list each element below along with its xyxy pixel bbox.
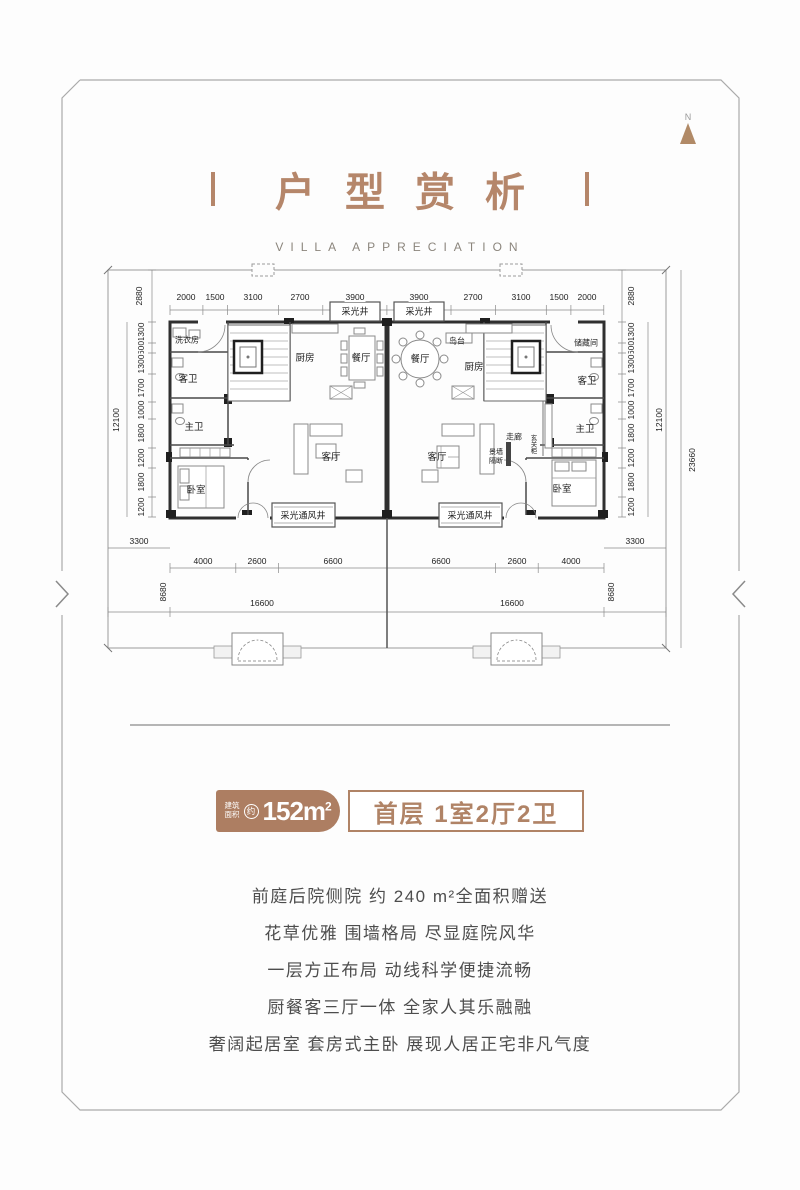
dimension-label: 1300 (136, 354, 146, 375)
room-label: 玄关柜 (527, 434, 537, 454)
dimension-label: 1500 (205, 292, 226, 302)
section-divider (130, 724, 670, 726)
dimension-label: 1700 (626, 378, 636, 399)
dimension-label: 4000 (193, 556, 214, 566)
room-label: 采光井 (341, 305, 368, 318)
room-label: 洗衣房 (175, 335, 199, 346)
dimension-label: 1000 (136, 400, 146, 421)
feature-line: 厨餐客三厅一体 全家人其乐融融 (0, 989, 800, 1026)
area-badge: 建筑 面积 约 152m2 (216, 790, 340, 832)
approx-circle: 约 (244, 804, 259, 819)
room-label: 储藏间 (574, 338, 598, 349)
dimension-label: 23660 (687, 447, 697, 473)
dimension-label: 1800 (136, 423, 146, 444)
unit-badge: 建筑 面积 约 152m2 首层 1室2厅2卫 (0, 790, 800, 832)
dimension-label: 1300 (626, 354, 636, 375)
dimension-label: 3300 (625, 536, 646, 546)
dimension-label: 3100 (243, 292, 264, 302)
dimension-label: 1800 (136, 472, 146, 493)
room-label: 客卫 (178, 371, 197, 385)
feature-line: 一层方正布局 动线科学便捷流畅 (0, 952, 800, 989)
dimension-label: 4000 (561, 556, 582, 566)
room-label: 卧室 (552, 481, 571, 495)
dimension-label: 16600 (249, 598, 275, 608)
dimension-label: 3900 (409, 292, 430, 302)
dimension-label: 2880 (626, 286, 636, 307)
room-label: 客厅 (321, 449, 340, 463)
dimension-label: 1200 (136, 497, 146, 518)
dimension-label: 16600 (499, 598, 525, 608)
room-label: 厨房 (295, 350, 314, 364)
room-label: 卧室 (186, 482, 205, 496)
area-value: 152m2 (263, 796, 331, 827)
room-label: 主卫 (575, 421, 594, 435)
room-label: 采光井 (405, 305, 432, 318)
room-label: 隔断 (489, 456, 503, 466)
dimension-label: 2000 (176, 292, 197, 302)
dimension-label: 6600 (323, 556, 344, 566)
room-label: 客卫 (577, 373, 596, 387)
dimension-lines (108, 270, 681, 648)
room-label: 厨房 (464, 359, 483, 373)
room-label: 主卫 (184, 419, 203, 433)
dimension-label: 1700 (136, 378, 146, 399)
feature-line: 花草优雅 围墙格局 尽显庭院风华 (0, 915, 800, 952)
room-label: 餐厅 (351, 350, 370, 364)
unit-info-badge: 首层 1室2厅2卫 (348, 790, 585, 832)
room-label: 岛台 (449, 336, 465, 347)
dimension-label: 2000 (577, 292, 598, 302)
dimension-label: 2600 (247, 556, 268, 566)
dimension-label: 1500 (549, 292, 570, 302)
dimension-label: 12100 (111, 407, 121, 433)
room-label: 采光通风井 (280, 509, 325, 522)
dimension-label: 3900 (345, 292, 366, 302)
dimension-label: 6600 (431, 556, 452, 566)
dimension-label: 1200 (626, 448, 636, 469)
area-prefix: 建筑 面积 (225, 802, 240, 819)
dimension-label: 1200 (136, 448, 146, 469)
dimension-label: 2700 (463, 292, 484, 302)
dimension-label: 2600 (507, 556, 528, 566)
feature-line: 前庭后院侧院 约 240 m²全面积赠送 (0, 878, 800, 915)
room-label: 客厅 (427, 449, 446, 463)
room-label: 采光通风井 (447, 509, 492, 522)
dimension-label: 12100 (654, 407, 664, 433)
dimension-label: 3300 (129, 536, 150, 546)
dimension-label: 1800 (626, 423, 636, 444)
dimension-label: 1800 (626, 472, 636, 493)
dimension-label: 1000 (626, 400, 636, 421)
room-label: 餐厅 (410, 351, 429, 365)
feature-list: 前庭后院侧院 约 240 m²全面积赠送 花草优雅 围墙格局 尽显庭院风华 一层… (0, 878, 800, 1063)
dimension-label: 3100 (511, 292, 532, 302)
feature-line: 奢阔起居室 套房式主卧 展现人居正宅非凡气度 (0, 1026, 800, 1063)
room-label: 走廊 (506, 432, 522, 443)
dimension-label: 1200 (626, 497, 636, 518)
dimension-label: 2880 (134, 286, 144, 307)
dimension-label: 8680 (158, 582, 168, 603)
dimension-label: 8680 (606, 582, 616, 603)
dimension-label: 2700 (290, 292, 311, 302)
